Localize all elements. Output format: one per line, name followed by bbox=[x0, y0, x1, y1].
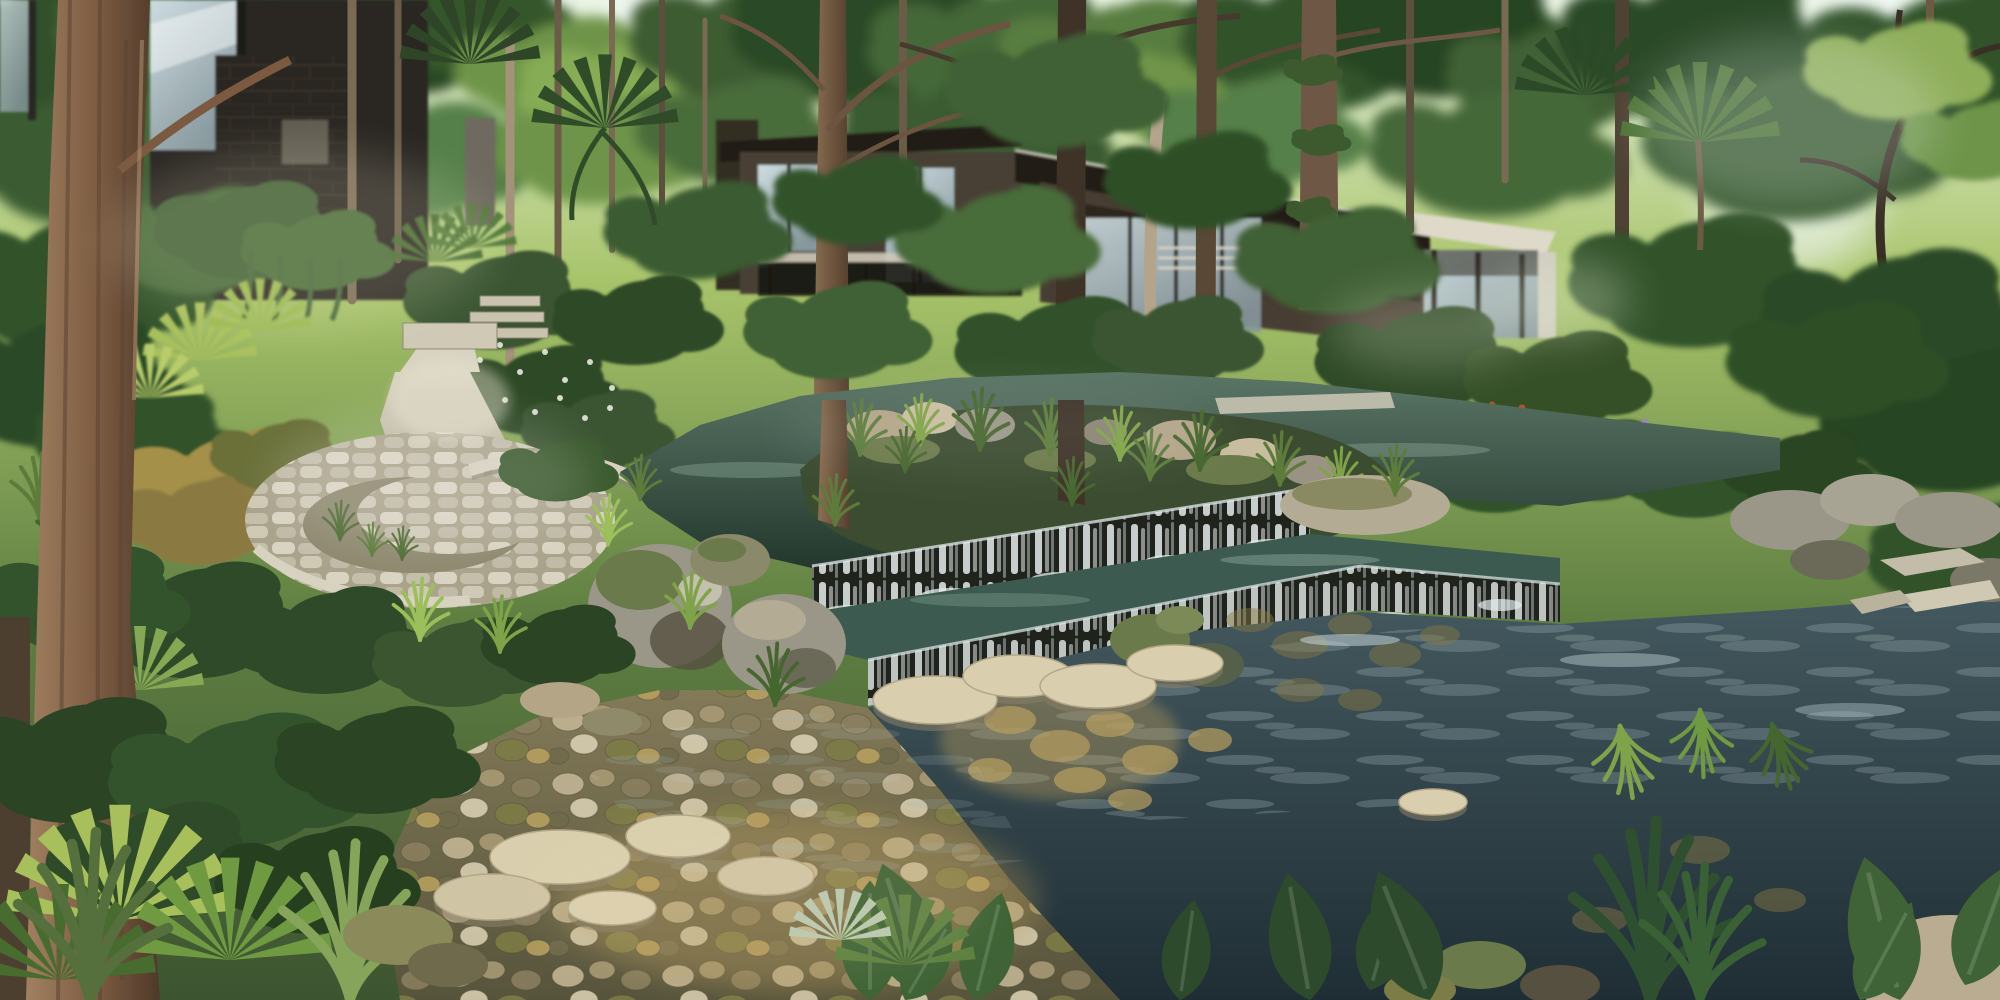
resort-garden-rendering: Tropical resort garden rendering: modern… bbox=[0, 0, 2000, 1000]
far-left-glass-sliver bbox=[0, 0, 36, 120]
landscape-canvas: Tropical resort garden rendering: modern… bbox=[0, 0, 2000, 1000]
planter-wall bbox=[403, 323, 497, 349]
